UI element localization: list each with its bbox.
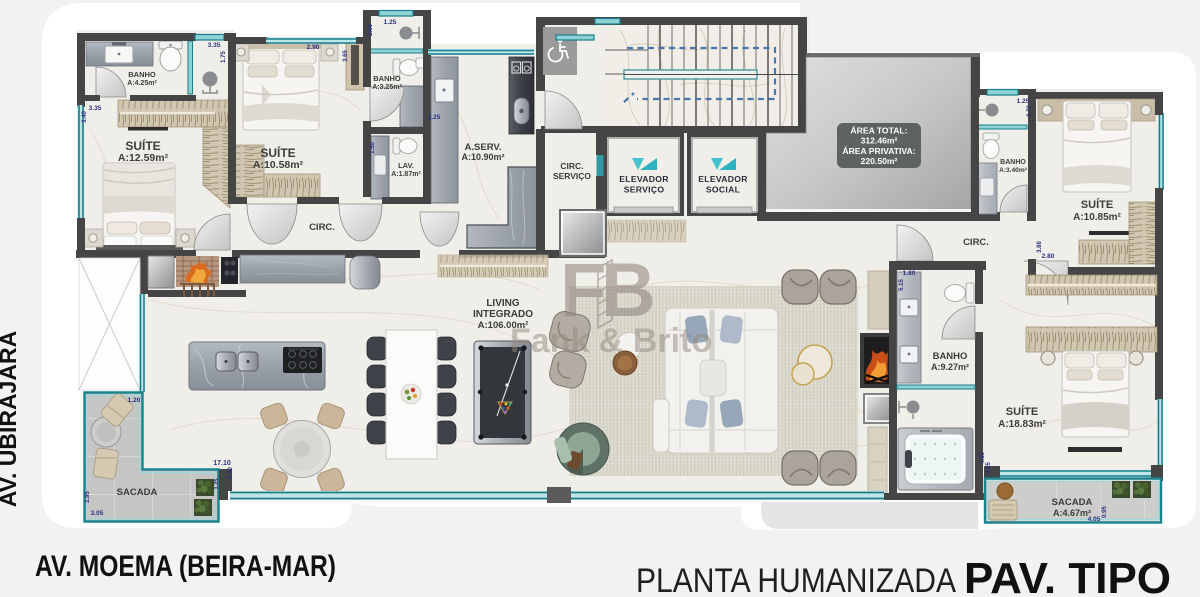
svg-text:3.40: 3.40 xyxy=(82,111,88,123)
svg-text:BANHO: BANHO xyxy=(1000,159,1026,166)
svg-text:PLANTA HUMANIZADA: PLANTA HUMANIZADA xyxy=(636,562,956,597)
svg-text:AV. UBIRAJARA: AV. UBIRAJARA xyxy=(0,331,21,507)
svg-text:SERVIÇO: SERVIÇO xyxy=(624,185,665,195)
svg-text:ELEVADOR: ELEVADOR xyxy=(698,174,748,184)
svg-text:SUÍTE: SUÍTE xyxy=(1006,405,1038,418)
svg-text:1.25: 1.25 xyxy=(1017,98,1030,105)
svg-text:A:3.25m²: A:3.25m² xyxy=(372,84,402,91)
svg-text:3.65: 3.65 xyxy=(343,50,349,62)
svg-text:ELEVADOR: ELEVADOR xyxy=(619,174,669,184)
svg-text:SACADA: SACADA xyxy=(1052,497,1093,508)
svg-text:LIVING: LIVING xyxy=(486,298,520,309)
svg-text:5.40: 5.40 xyxy=(228,467,234,479)
svg-text:A:10.85m²: A:10.85m² xyxy=(1073,212,1121,223)
svg-text:LAV.: LAV. xyxy=(398,161,414,170)
svg-text:A:4.67m²: A:4.67m² xyxy=(1053,508,1091,518)
svg-text:AV. MOEMA (BEIRA-MAR): AV. MOEMA (BEIRA-MAR) xyxy=(35,550,336,583)
svg-text:1.25: 1.25 xyxy=(214,479,220,490)
svg-text:17.10: 17.10 xyxy=(213,460,231,467)
svg-text:SUÍTE: SUÍTE xyxy=(260,145,295,160)
svg-text:2.80: 2.80 xyxy=(1042,253,1055,260)
svg-text:2.90: 2.90 xyxy=(307,44,320,51)
svg-text:3.35: 3.35 xyxy=(208,42,221,49)
svg-text:A:9.27m²: A:9.27m² xyxy=(931,362,969,372)
svg-text:ÁREA TOTAL:: ÁREA TOTAL: xyxy=(850,126,907,136)
svg-text:ÁREA PRIVATIVA:: ÁREA PRIVATIVA: xyxy=(842,146,915,156)
svg-text:BANHO: BANHO xyxy=(373,74,401,83)
svg-text:5.15: 5.15 xyxy=(899,279,905,291)
svg-text:SERVIÇO: SERVIÇO xyxy=(553,171,591,181)
svg-text:2.60: 2.60 xyxy=(368,24,374,36)
svg-text:BANHO: BANHO xyxy=(933,351,968,362)
svg-text:A:10.58m²: A:10.58m² xyxy=(253,159,304,171)
svg-text:SOCIAL: SOCIAL xyxy=(706,185,740,195)
svg-text:220.50m²: 220.50m² xyxy=(861,156,898,166)
svg-text:2.95: 2.95 xyxy=(85,491,91,503)
svg-text:1.20: 1.20 xyxy=(128,397,141,404)
svg-text:CIRC.: CIRC. xyxy=(560,161,583,171)
svg-text:3.88: 3.88 xyxy=(1037,241,1043,253)
svg-text:CIRC.: CIRC. xyxy=(963,237,989,248)
svg-text:A:4.25m²: A:4.25m² xyxy=(127,80,157,87)
svg-text:A:3.40m²: A:3.40m² xyxy=(999,167,1028,174)
svg-text:1.50: 1.50 xyxy=(370,142,376,154)
svg-text:CIRC.: CIRC. xyxy=(309,222,335,233)
svg-text:3.05: 3.05 xyxy=(91,510,104,517)
svg-text:4.05: 4.05 xyxy=(1088,516,1101,523)
svg-text:A:1.87m²: A:1.87m² xyxy=(391,171,421,178)
svg-text:0.95: 0.95 xyxy=(1102,506,1108,518)
svg-text:1.80: 1.80 xyxy=(903,270,916,277)
svg-text:1.25: 1.25 xyxy=(428,114,441,121)
svg-text:2.72: 2.72 xyxy=(1027,105,1033,117)
svg-text:Fank & Brito: Fank & Brito xyxy=(510,322,712,360)
svg-text:4.05: 4.05 xyxy=(986,462,992,474)
svg-text:312.46m²: 312.46m² xyxy=(861,136,898,146)
svg-text:SACADA: SACADA xyxy=(117,487,158,498)
svg-text:3.35: 3.35 xyxy=(89,105,102,112)
svg-text:INTEGRADO: INTEGRADO xyxy=(473,309,533,320)
svg-text:A:106.00m²: A:106.00m² xyxy=(478,320,529,331)
svg-text:PAV. TIPO: PAV. TIPO xyxy=(964,554,1171,597)
svg-text:BANHO: BANHO xyxy=(128,70,156,79)
svg-text:1.25: 1.25 xyxy=(384,19,397,26)
svg-text:A:18.83m²: A:18.83m² xyxy=(998,419,1046,430)
svg-text:SUÍTE: SUÍTE xyxy=(1081,198,1113,211)
svg-text:1.75: 1.75 xyxy=(221,51,227,63)
svg-text:SUÍTE: SUÍTE xyxy=(125,138,160,153)
svg-text:A:10.90m²: A:10.90m² xyxy=(461,152,504,162)
svg-text:4.65: 4.65 xyxy=(980,452,986,464)
svg-text:A:12.59m²: A:12.59m² xyxy=(118,152,169,164)
